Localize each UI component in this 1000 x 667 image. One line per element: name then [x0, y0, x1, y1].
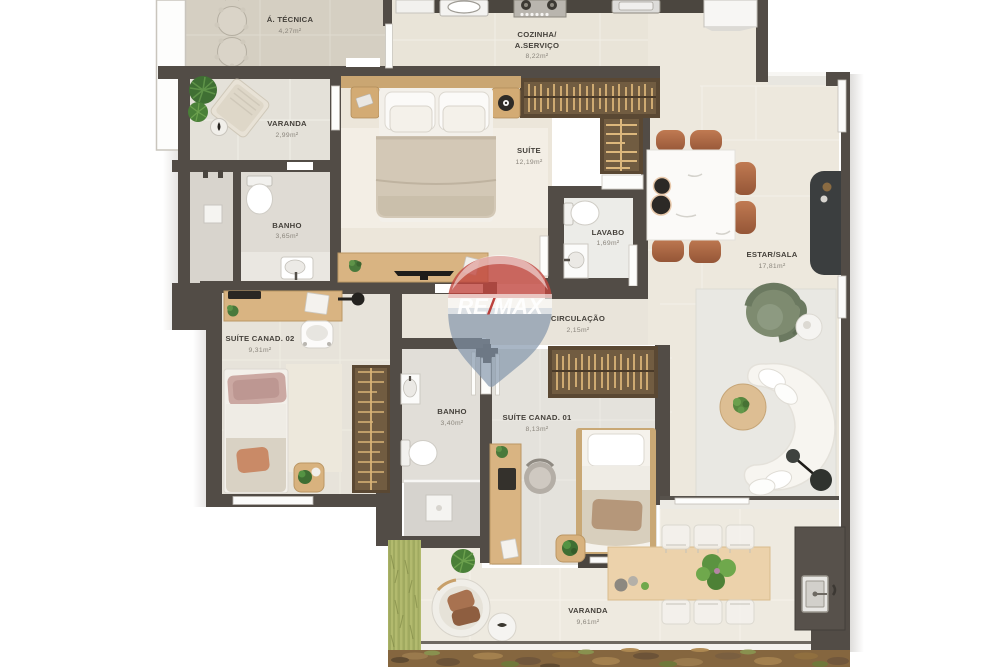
svg-text:Á. TÉCNICA: Á. TÉCNICA — [267, 15, 314, 24]
svg-text:2,99m²: 2,99m² — [276, 132, 299, 139]
svg-text:12,19m²: 12,19m² — [515, 159, 542, 166]
svg-text:RE/MAX: RE/MAX — [457, 294, 544, 319]
svg-text:BANHO: BANHO — [437, 407, 466, 416]
svg-text:3,40m²: 3,40m² — [441, 420, 464, 427]
svg-text:VARANDA: VARANDA — [267, 119, 307, 128]
svg-text:4,27m²: 4,27m² — [279, 28, 302, 35]
svg-text:CIRCULAÇÃO: CIRCULAÇÃO — [551, 314, 605, 323]
svg-text:SUÍTE CANAD. 01: SUÍTE CANAD. 01 — [502, 413, 572, 422]
svg-text:LAVABO: LAVABO — [592, 228, 625, 237]
svg-text:COZINHA/: COZINHA/ — [517, 30, 557, 39]
svg-text:SUÍTE CANAD. 02: SUÍTE CANAD. 02 — [225, 334, 294, 343]
svg-text:8,22m²: 8,22m² — [526, 53, 549, 60]
svg-text:2,15m²: 2,15m² — [567, 327, 590, 334]
svg-text:3,65m²: 3,65m² — [276, 233, 299, 240]
svg-text:A.SERVIÇO: A.SERVIÇO — [515, 41, 559, 50]
svg-text:9,31m²: 9,31m² — [249, 347, 272, 354]
svg-text:ESTAR/SALA: ESTAR/SALA — [746, 250, 797, 259]
svg-text:1,69m²: 1,69m² — [597, 240, 620, 247]
svg-text:9,61m²: 9,61m² — [577, 619, 600, 626]
svg-text:17,81m²: 17,81m² — [758, 263, 785, 270]
svg-text:8,13m²: 8,13m² — [526, 426, 549, 433]
svg-text:SUÍTE: SUÍTE — [517, 146, 541, 155]
svg-text:VARANDA: VARANDA — [568, 606, 608, 615]
svg-text:BANHO: BANHO — [272, 221, 301, 230]
